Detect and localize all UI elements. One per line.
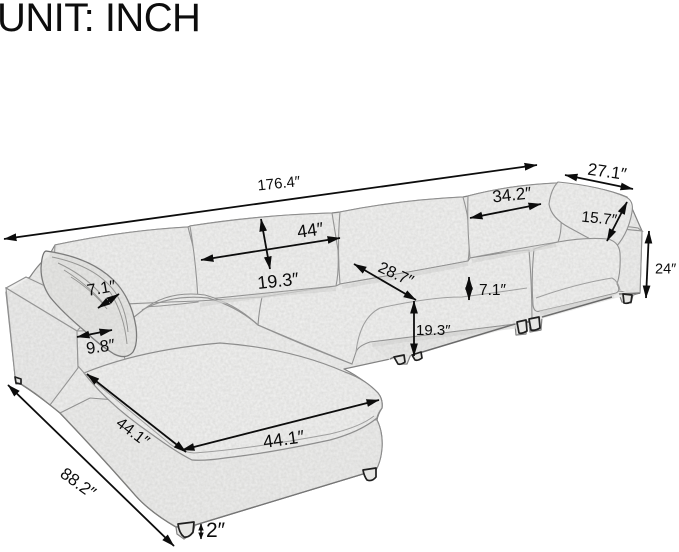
svg-text:7.1″: 7.1″ xyxy=(479,282,507,299)
svg-text:2″: 2″ xyxy=(206,519,226,542)
svg-text:176.4″: 176.4″ xyxy=(257,173,302,194)
svg-text:44″: 44″ xyxy=(296,218,326,242)
svg-text:24″: 24″ xyxy=(655,262,676,278)
svg-text:19.3″: 19.3″ xyxy=(416,322,451,339)
svg-text:34.2″: 34.2″ xyxy=(491,183,532,206)
svg-text:88.2″: 88.2″ xyxy=(57,464,100,502)
svg-text:UNIT: INCH: UNIT: INCH xyxy=(0,0,200,40)
